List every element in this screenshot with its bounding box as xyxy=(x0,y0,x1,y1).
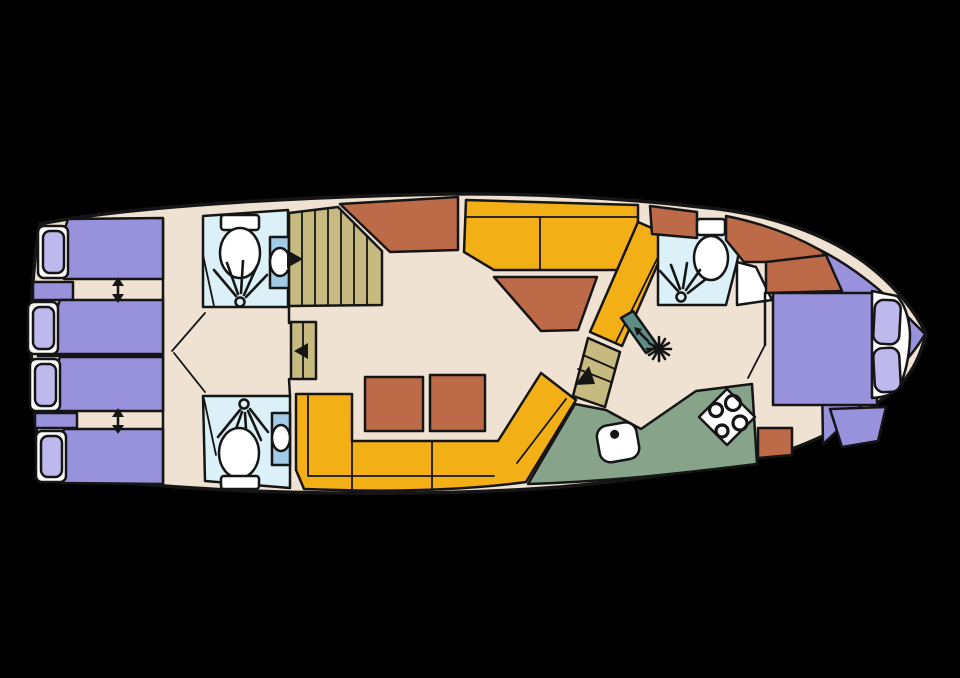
pillow-1 xyxy=(43,231,64,273)
bow-pillow-1 xyxy=(873,299,901,344)
bow-pillow-1-shape xyxy=(873,299,901,344)
toilet-cistern-3 xyxy=(697,219,725,235)
washbasin-bowl-2 xyxy=(272,425,290,451)
nightstand-1 xyxy=(33,282,73,300)
aft-steps xyxy=(291,322,316,379)
single-bed-4 xyxy=(58,429,163,484)
wardrobe-d xyxy=(758,428,792,458)
bathroom-forward-top xyxy=(203,210,290,307)
sofa-top xyxy=(464,200,638,270)
bow-pillow-2 xyxy=(873,347,901,392)
shower-head-1 xyxy=(236,298,245,307)
pillow-2 xyxy=(33,307,54,349)
shower-head-3 xyxy=(677,293,686,302)
toilet-cistern-2 xyxy=(221,476,259,489)
nightstand-2 xyxy=(35,413,77,428)
single-bed-1 xyxy=(61,218,163,279)
corridor-wall-stub-2 xyxy=(289,379,290,396)
boat-floor-plan xyxy=(0,0,960,678)
sink-basin xyxy=(595,421,641,464)
pillow-3 xyxy=(35,364,56,406)
table-1 xyxy=(365,377,423,431)
wardrobe-a xyxy=(650,206,697,238)
table-2 xyxy=(430,375,485,431)
floor-plan-canvas xyxy=(0,0,960,678)
shower-head-2 xyxy=(240,400,249,409)
toilet-icon-2 xyxy=(219,428,259,478)
sink-icon xyxy=(595,421,641,464)
double-bed xyxy=(773,293,877,405)
single-bed-3 xyxy=(52,357,163,411)
pillow-4 xyxy=(41,436,62,477)
single-bed-2 xyxy=(52,300,163,354)
bow-bed-bench xyxy=(830,407,886,447)
bathroom-aft-bottom xyxy=(203,396,290,489)
bow-pillow-2-shape xyxy=(873,347,901,392)
